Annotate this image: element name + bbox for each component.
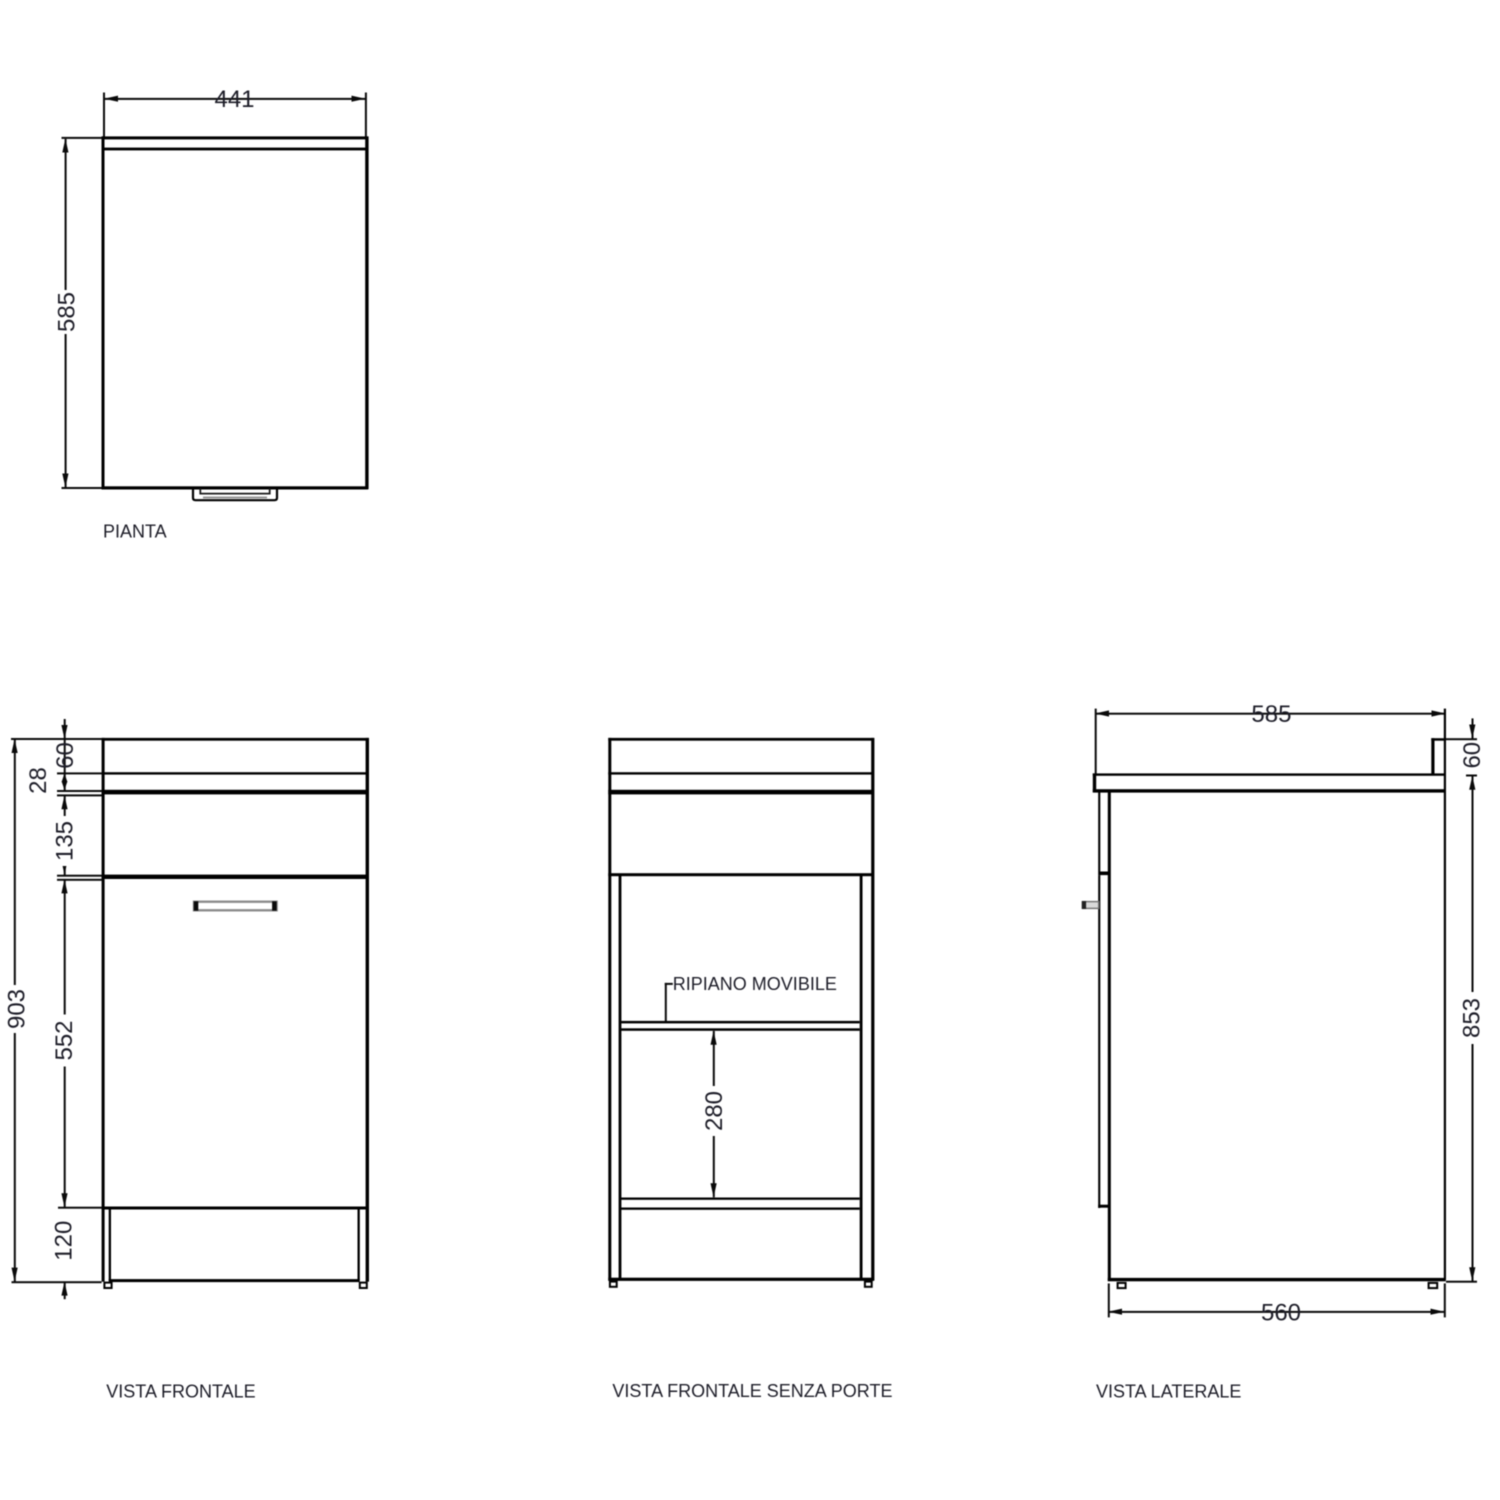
svg-text:903: 903 [4,989,31,1029]
svg-text:560: 560 [1261,1300,1301,1327]
svg-text:135: 135 [52,821,79,861]
svg-text:280: 280 [701,1091,728,1131]
svg-text:60: 60 [1459,742,1486,769]
svg-text:585: 585 [1251,701,1291,728]
svg-text:552: 552 [51,1020,78,1060]
svg-text:60: 60 [52,742,79,769]
svg-text:VISTA FRONTALE: VISTA FRONTALE [106,1381,255,1401]
svg-text:PIANTA: PIANTA [103,522,167,542]
svg-text:RIPIANO MOVIBILE: RIPIANO MOVIBILE [673,974,837,994]
svg-text:441: 441 [214,86,254,113]
svg-text:VISTA FRONTALE SENZA PORTE: VISTA FRONTALE SENZA PORTE [612,1381,892,1401]
svg-text:120: 120 [50,1221,77,1261]
svg-text:853: 853 [1459,998,1486,1038]
svg-text:VISTA LATERALE: VISTA LATERALE [1096,1381,1241,1401]
svg-text:585: 585 [54,292,81,332]
svg-text:28: 28 [25,767,52,794]
